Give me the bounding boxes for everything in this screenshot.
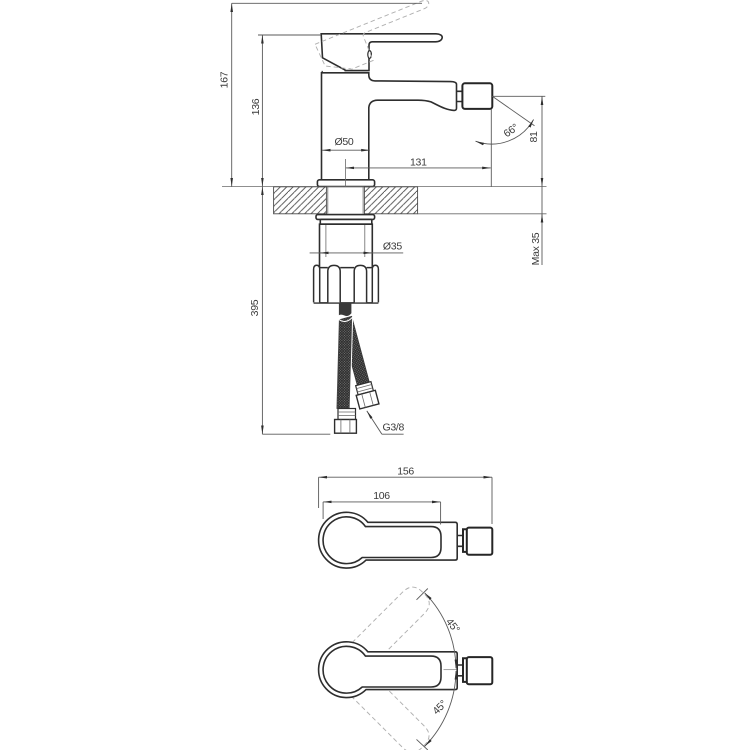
svg-text:395: 395 [249, 299, 261, 316]
svg-text:Ø35: Ø35 [383, 240, 402, 252]
svg-text:G3/8: G3/8 [383, 422, 405, 434]
svg-text:136: 136 [250, 98, 262, 115]
svg-text:131: 131 [410, 157, 427, 169]
svg-text:81: 81 [528, 131, 540, 143]
svg-text:156: 156 [397, 465, 414, 477]
svg-text:106: 106 [373, 490, 390, 502]
svg-text:Ø50: Ø50 [335, 136, 354, 148]
svg-text:167: 167 [218, 71, 230, 88]
svg-text:Max 35: Max 35 [530, 232, 542, 265]
